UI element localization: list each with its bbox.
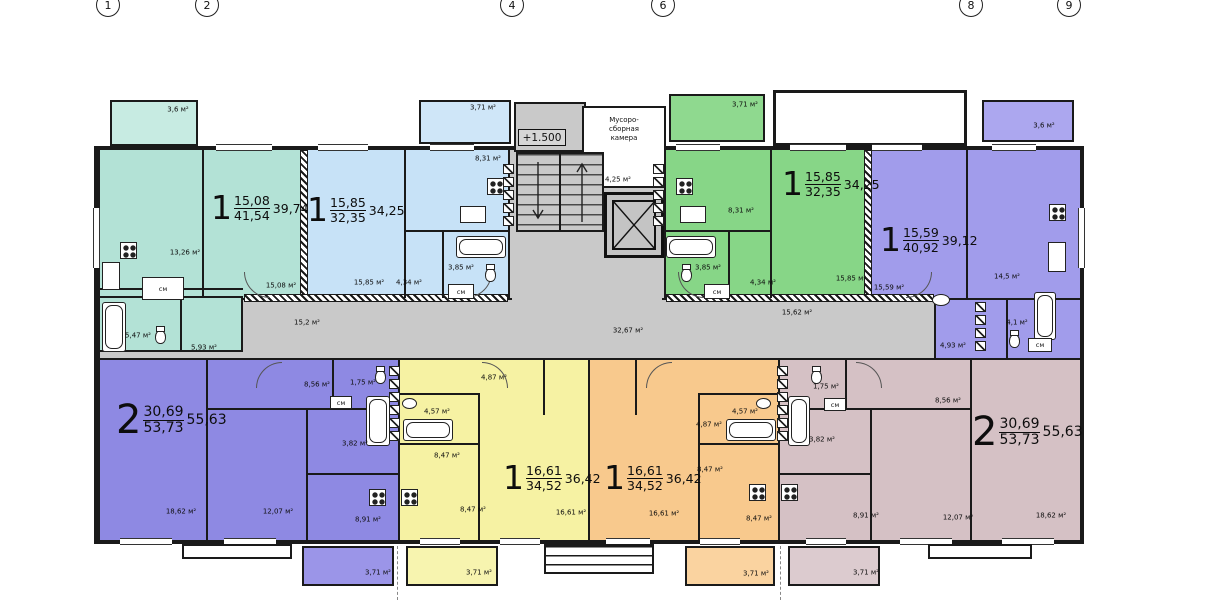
room-area-label: 15,85 м² [836, 276, 866, 283]
balcony-yellow [406, 546, 498, 586]
stove-icon [781, 484, 798, 501]
wall [94, 146, 98, 544]
room-area-label: 8,56 м² [304, 382, 330, 389]
apartment-summary-label: 1 15,0841,54 39,74 [211, 194, 309, 222]
apartment-summary-label: 1 16,6134,52 36,42 [604, 464, 702, 492]
vent-shaft-column [503, 164, 514, 226]
vent-shaft-icon [777, 418, 788, 428]
entrance-steps [928, 544, 1032, 559]
garbage-room-label: Мусоро- сборная камера [586, 116, 662, 143]
floor-plan: Мусоро- сборная камера 4,25 м² [0, 0, 1208, 601]
bathtub-icon [666, 236, 716, 258]
room-area-label: 15,08 м² [266, 283, 296, 290]
window [992, 144, 1036, 151]
sink-icon [932, 294, 950, 306]
room-area-label: 15,59 м² [874, 285, 904, 292]
corridor-opening [512, 296, 662, 304]
balcony-area-label: 3,71 м² [470, 105, 496, 112]
window [500, 538, 540, 545]
balcony-blue [419, 100, 511, 144]
room-area-label: 8,31 м² [475, 156, 501, 163]
wall [700, 393, 780, 395]
corridor-area-label: 15,62 м² [782, 310, 812, 317]
balcony-area-label: 3,71 м² [732, 102, 758, 109]
kitchen-counter-icon [102, 262, 120, 290]
vent-shaft-icon [389, 392, 400, 402]
wall [1006, 300, 1008, 358]
room-area-label: 3,85 м² [448, 265, 474, 272]
apartment-purple-top-lower[interactable] [934, 298, 1082, 360]
window [806, 538, 846, 545]
vent-shaft-icon [503, 177, 514, 187]
wall [306, 473, 398, 475]
entrance-steps [544, 544, 654, 574]
bathtub-icon [456, 236, 506, 258]
vent-shaft-icon [975, 341, 986, 351]
window [700, 538, 740, 545]
wall [404, 150, 406, 298]
apartment-summary-label: 2 30,6953,73 55,63 [972, 416, 1083, 449]
axis-line [397, 546, 398, 600]
balcony-beige [788, 546, 880, 586]
vent-shaft-icon [653, 203, 664, 213]
room-area-label: 4,1 м² [1006, 320, 1027, 327]
bathtub-icon [366, 396, 390, 446]
balcony-area-label: 3,71 м² [743, 571, 769, 578]
axis-bubble: 6 [651, 0, 675, 17]
room-area-label: 14,5 м² [994, 274, 1020, 281]
wall [666, 230, 772, 232]
axis-bubble: 2 [195, 0, 219, 17]
closet-label: см [824, 398, 846, 411]
balcony-area-label: 3,71 м² [853, 570, 879, 577]
axis-bubble: 4 [500, 0, 524, 17]
vent-shaft-icon [653, 190, 664, 200]
room-area-label: 4,93 м² [940, 343, 966, 350]
vent-shaft-icon [389, 405, 400, 415]
corridor-area-label: 32,67 м² [613, 328, 643, 335]
room-area-label: 15,85 м² [354, 280, 384, 287]
apartment-summary-label: 1 15,8532,35 34,25 [782, 170, 880, 198]
room-area-label: 12,07 м² [263, 509, 293, 516]
kitchen-counter-icon [1048, 242, 1066, 272]
balcony-purple-bottom [302, 546, 394, 586]
window [420, 538, 460, 545]
balcony-orange [685, 546, 775, 586]
room-area-label: 3,85 м² [695, 265, 721, 272]
room-area-label: 8,47 м² [460, 507, 486, 514]
vent-shaft-icon [503, 216, 514, 226]
window [872, 144, 922, 151]
vent-shaft-column [975, 302, 986, 351]
toilet-icon [680, 264, 692, 281]
balcony-open [773, 90, 967, 146]
corridor-area-label: 15,2 м² [294, 320, 320, 327]
bathtub-icon [788, 396, 810, 446]
wall [700, 443, 780, 445]
toilet-icon [810, 366, 822, 383]
window [216, 144, 272, 151]
room-area-label: 4,25 м² [605, 177, 631, 184]
vent-shaft-icon [975, 315, 986, 325]
bathtub-icon [1034, 292, 1056, 340]
closet-label: см [330, 396, 352, 409]
apartment-summary-label: 2 30,6953,73 55,63 [116, 404, 227, 437]
room-area-label: 3,82 м² [809, 437, 835, 444]
room-area-label: 4,57 м² [732, 409, 758, 416]
vent-shaft-icon [777, 392, 788, 402]
balcony-purple-top [982, 100, 1074, 142]
axis-line [780, 546, 781, 600]
apartment-purple-top[interactable] [868, 148, 1082, 300]
bathtub-icon [403, 419, 453, 441]
stair-direction-arrows [516, 152, 604, 232]
elevation-label: +1.500 [518, 129, 566, 146]
vent-shaft-column [653, 164, 664, 226]
room-area-label: 16,61 м² [649, 511, 679, 518]
stove-icon [676, 178, 693, 195]
wall [780, 473, 872, 475]
balcony-area-label: 3,71 м² [466, 570, 492, 577]
window [93, 208, 100, 268]
room-area-label: 12,07 м² [943, 515, 973, 522]
closet-label: см [448, 284, 474, 299]
vent-shaft-icon [975, 302, 986, 312]
entrance-steps [182, 544, 292, 559]
room-area-label: 13,26 м² [170, 250, 200, 257]
wall [543, 360, 545, 415]
vent-shaft-icon [389, 366, 400, 376]
kitchen-counter-icon [460, 206, 486, 223]
balcony-area-label: 3,71 м² [365, 570, 391, 577]
vent-shaft-icon [777, 366, 788, 376]
wall [404, 230, 508, 232]
wall [635, 360, 637, 415]
balcony-area-label: 3,6 м² [1033, 123, 1054, 130]
sink-icon [756, 398, 771, 409]
vent-shaft-icon [503, 203, 514, 213]
wall [442, 230, 444, 298]
wall [1080, 146, 1084, 544]
vent-shaft-icon [653, 216, 664, 226]
apartment-summary-label: 1 15,8532,35 34,25 [307, 196, 405, 224]
window [1078, 208, 1085, 268]
room-area-label: 18,62 м² [166, 509, 196, 516]
window [676, 144, 720, 151]
room-area-label: 18,62 м² [1036, 513, 1066, 520]
room-area-label: 8,91 м² [355, 517, 381, 524]
apartment-summary-label: 1 16,6134,52 36,42 [503, 464, 601, 492]
vent-shaft-column [777, 366, 788, 441]
room-area-label: 4,34 м² [750, 280, 776, 287]
window [430, 144, 474, 151]
vent-shaft-icon [389, 418, 400, 428]
stove-icon [487, 178, 504, 195]
vent-shaft-column [389, 366, 400, 441]
kitchen-counter-icon [680, 206, 706, 223]
toilet-icon [1008, 330, 1020, 347]
wall [770, 150, 772, 298]
bathtub-icon [102, 302, 126, 352]
wall [206, 360, 208, 540]
wall [202, 150, 204, 298]
room-area-label: 4,87 м² [696, 422, 722, 429]
room-area-label: 8,56 м² [935, 398, 961, 405]
stove-icon [369, 489, 386, 506]
room-area-label: 8,31 м² [728, 208, 754, 215]
vent-shaft-icon [653, 164, 664, 174]
vent-shaft-icon [653, 177, 664, 187]
balcony-area-label: 3,6 м² [167, 107, 188, 114]
room-area-label: 1,75 м² [813, 384, 839, 391]
room-area-label: 1,75 м² [350, 380, 376, 387]
stove-icon [749, 484, 766, 501]
bathtub-icon [726, 419, 776, 441]
room-area-label: 8,47 м² [434, 453, 460, 460]
room-area-label: 4,57 м² [424, 409, 450, 416]
room-area-label: 16,61 м² [556, 510, 586, 517]
apartment-summary-label: 1 15,5940,92 39,12 [880, 226, 978, 254]
vent-shaft-icon [777, 379, 788, 389]
vent-shaft-icon [503, 190, 514, 200]
room-area-label: 5,93 м² [191, 345, 217, 352]
stove-icon [120, 242, 137, 259]
axis-bubble: 8 [959, 0, 983, 17]
vent-shaft-icon [503, 164, 514, 174]
axis-bubble: 1 [96, 0, 120, 17]
wall [398, 443, 480, 445]
room-area-label: 4,34 м² [396, 280, 422, 287]
closet-label: см [704, 284, 730, 299]
stove-icon [401, 489, 418, 506]
toilet-icon [154, 326, 166, 343]
closet-label: см [1028, 338, 1052, 352]
vent-shaft-icon [389, 431, 400, 441]
room-area-label: 8,47 м² [746, 516, 772, 523]
vent-shaft-icon [389, 379, 400, 389]
window [318, 144, 368, 151]
room-area-label: 8,91 м² [853, 513, 879, 520]
room-area-label: 3,82 м² [342, 441, 368, 448]
closet-label: см [142, 277, 184, 300]
wall [398, 393, 480, 395]
axis-bubble: 9 [1057, 0, 1081, 17]
toilet-icon [484, 264, 496, 281]
window [790, 144, 846, 151]
window [120, 538, 172, 545]
wall [478, 393, 480, 540]
stove-icon [1049, 204, 1066, 221]
vent-shaft-icon [975, 328, 986, 338]
sink-icon [402, 398, 417, 409]
wall [966, 150, 968, 298]
room-area-label: 4,87 м² [481, 375, 507, 382]
room-area-label: 5,47 м² [125, 333, 151, 340]
vent-shaft-icon [777, 405, 788, 415]
vent-shaft-icon [777, 431, 788, 441]
